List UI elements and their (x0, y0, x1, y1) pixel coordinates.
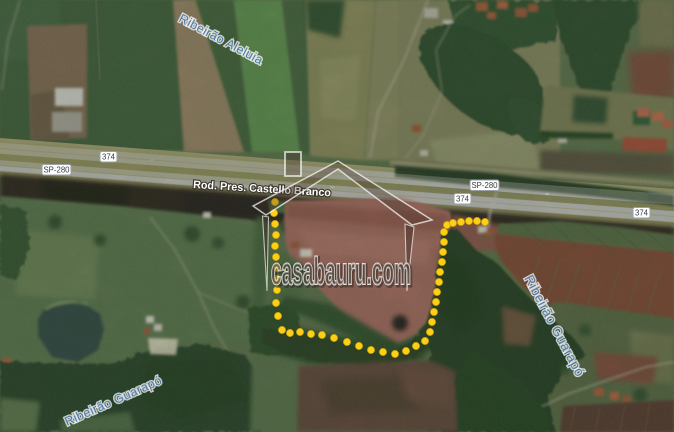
svg-text:374: 374 (635, 209, 649, 218)
svg-text:casabauru.com: casabauru.com (271, 251, 411, 293)
svg-text:SP-280: SP-280 (43, 166, 70, 175)
svg-text:SP-280: SP-280 (471, 181, 498, 190)
svg-text:374: 374 (102, 153, 116, 162)
svg-text:374: 374 (456, 195, 470, 204)
